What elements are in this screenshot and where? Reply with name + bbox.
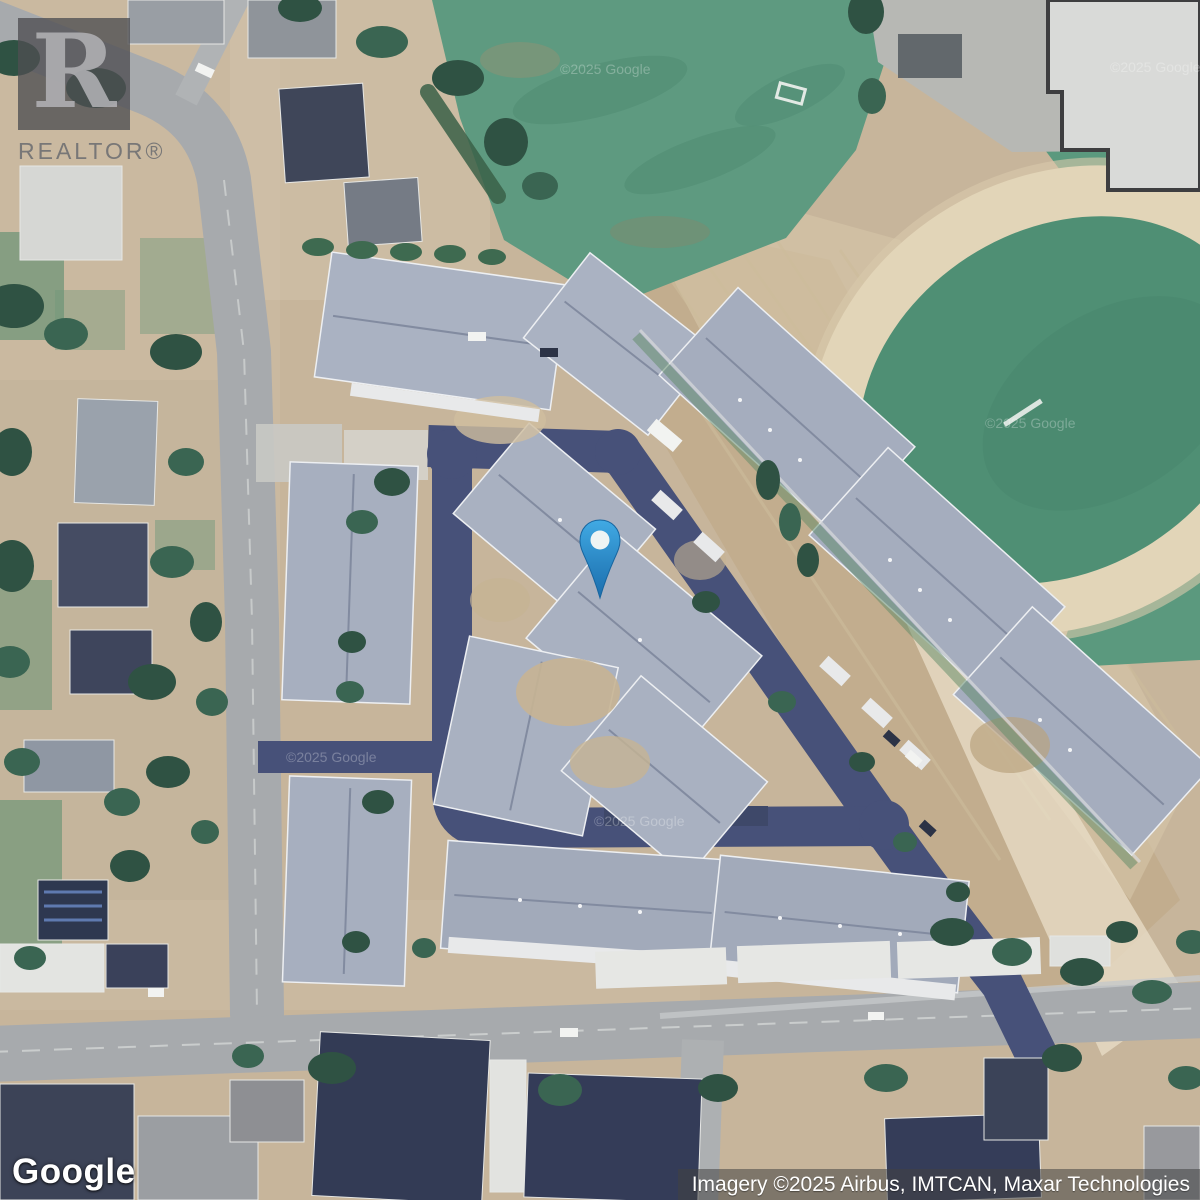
map-viewport[interactable]: ©2025 Google ©2025 Google ©2025 Google ©… xyxy=(0,0,1200,1200)
google-tile-watermark: ©2025 Google xyxy=(286,749,377,765)
realtor-logo-label: REALTOR® xyxy=(18,138,168,165)
google-tile-watermark: ©2025 Google xyxy=(985,415,1076,431)
imagery-attribution: Imagery ©2025 Airbus, IMTCAN, Maxar Tech… xyxy=(678,1169,1200,1200)
shed xyxy=(898,34,962,78)
realtor-logo-icon: R xyxy=(18,18,130,130)
realtor-watermark: R REALTOR® xyxy=(18,18,168,165)
map-pin-icon[interactable] xyxy=(577,518,623,602)
realtor-logo-letter: R xyxy=(32,21,117,123)
google-tile-watermark: ©2025 Google xyxy=(560,61,651,77)
google-tile-watermark: ©2025 Google xyxy=(1110,59,1200,75)
solar-roof-house xyxy=(38,880,108,940)
google-tile-watermark: ©2025 Google xyxy=(594,813,685,829)
google-logo[interactable]: Google xyxy=(12,1152,136,1192)
